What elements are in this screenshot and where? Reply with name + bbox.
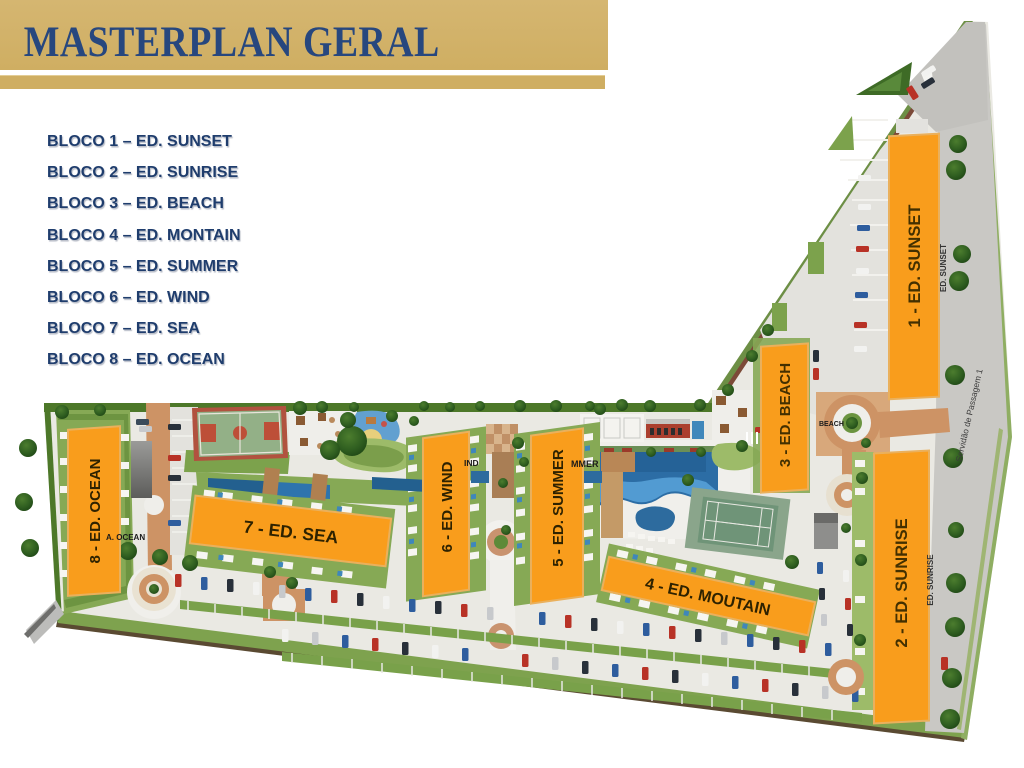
svg-text:BEACH: BEACH: [819, 421, 844, 428]
svg-text:2 - ED. SUNRISE: 2 - ED. SUNRISE: [893, 518, 911, 647]
svg-text:6 - ED. WIND: 6 - ED. WIND: [439, 461, 456, 552]
svg-text:8 - ED. OCEAN: 8 - ED. OCEAN: [87, 458, 104, 563]
svg-text:1 - ED. SUNSET: 1 - ED. SUNSET: [906, 205, 924, 328]
svg-text:ED. SUNSET: ED. SUNSET: [939, 244, 948, 292]
svg-text:5 - ED. SUMMER: 5 - ED. SUMMER: [550, 449, 567, 567]
svg-text:IND: IND: [464, 458, 479, 468]
svg-text:MMER: MMER: [571, 459, 599, 469]
svg-text:ED. SUNRISE: ED. SUNRISE: [926, 554, 935, 606]
svg-text:A. OCEAN: A. OCEAN: [106, 533, 145, 542]
svg-text:3 - ED. BEACH: 3 - ED. BEACH: [777, 363, 794, 467]
